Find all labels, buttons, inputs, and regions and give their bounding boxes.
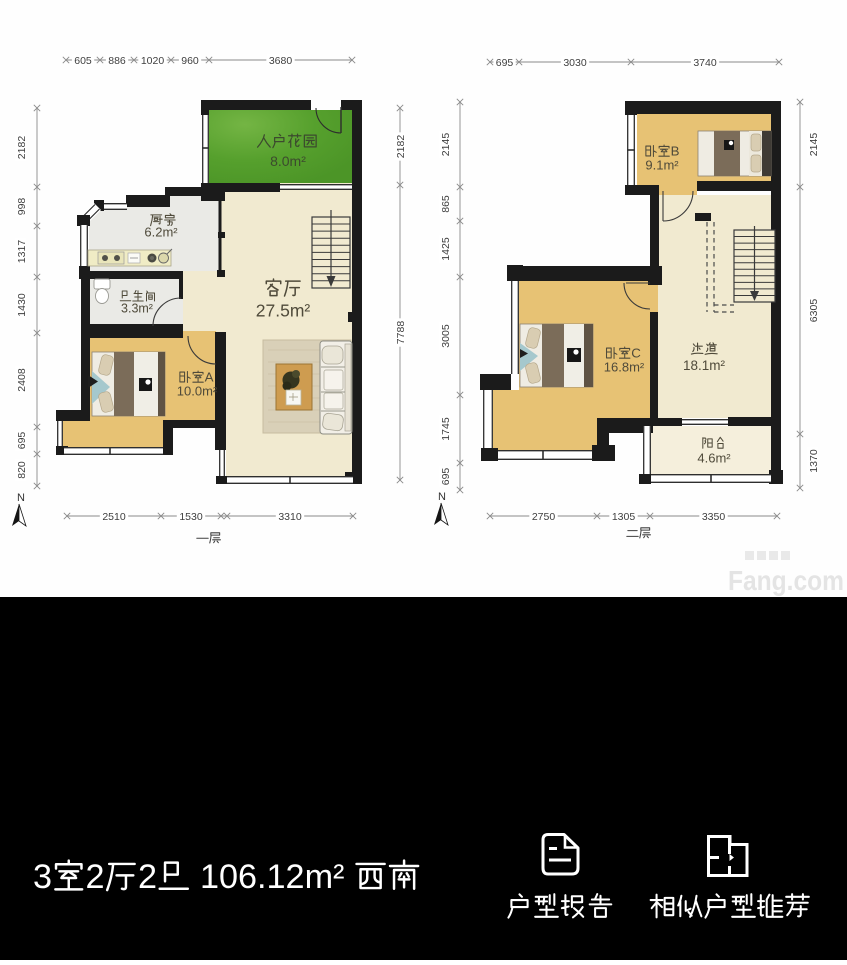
svg-text:2145: 2145	[808, 133, 820, 157]
svg-text:N: N	[438, 491, 446, 503]
svg-text:2750: 2750	[532, 511, 556, 523]
svg-text:695: 695	[16, 432, 28, 450]
svg-text:3030: 3030	[563, 57, 587, 69]
svg-text:7788: 7788	[395, 321, 407, 345]
svg-text:8.0m²: 8.0m²	[270, 153, 306, 169]
svg-text:N: N	[17, 492, 25, 504]
svg-text:2510: 2510	[102, 511, 126, 523]
svg-text:1317: 1317	[16, 240, 28, 264]
svg-text:106.12m²: 106.12m²	[191, 858, 354, 896]
svg-text:2182: 2182	[395, 135, 407, 159]
svg-text:695: 695	[496, 57, 514, 69]
svg-text:998: 998	[16, 198, 28, 216]
svg-text:2: 2	[138, 858, 157, 896]
svg-text:1425: 1425	[440, 237, 452, 261]
svg-text:2145: 2145	[440, 133, 452, 157]
svg-text:2182: 2182	[16, 136, 28, 160]
svg-text:2: 2	[86, 858, 105, 896]
svg-text:4.6m²: 4.6m²	[697, 451, 731, 466]
svg-text:960: 960	[181, 55, 199, 67]
svg-text:605: 605	[74, 55, 92, 67]
svg-text:16.8m²: 16.8m²	[604, 360, 645, 375]
svg-text:6.2m²: 6.2m²	[144, 225, 178, 240]
svg-text:2408: 2408	[16, 368, 28, 392]
svg-text:865: 865	[440, 195, 452, 213]
svg-text:3: 3	[33, 858, 52, 896]
svg-text:18.1m²: 18.1m²	[683, 358, 726, 373]
svg-text:1745: 1745	[440, 417, 452, 441]
svg-text:1370: 1370	[808, 449, 820, 473]
svg-text:9.1m²: 9.1m²	[645, 158, 679, 173]
svg-text:3.3m²: 3.3m²	[121, 302, 153, 316]
svg-text:3005: 3005	[440, 324, 452, 348]
svg-text:695: 695	[440, 468, 452, 486]
svg-text:820: 820	[16, 461, 28, 479]
svg-text:6305: 6305	[808, 299, 820, 323]
svg-text:27.5m²: 27.5m²	[256, 300, 311, 320]
svg-text:1020: 1020	[141, 55, 165, 67]
svg-text:3350: 3350	[702, 511, 726, 523]
svg-text:1305: 1305	[612, 511, 636, 523]
svg-text:Fang.com: Fang.com	[728, 565, 844, 596]
svg-text:B: B	[671, 144, 680, 159]
svg-text:3680: 3680	[269, 55, 293, 67]
svg-text:886: 886	[108, 55, 126, 67]
svg-text:1530: 1530	[179, 511, 203, 523]
svg-text:C: C	[631, 346, 641, 361]
svg-text:1430: 1430	[16, 293, 28, 317]
svg-text:A: A	[205, 370, 214, 385]
svg-text:10.0m²: 10.0m²	[177, 384, 218, 399]
svg-text:3740: 3740	[693, 57, 717, 69]
svg-text:3310: 3310	[278, 511, 302, 523]
